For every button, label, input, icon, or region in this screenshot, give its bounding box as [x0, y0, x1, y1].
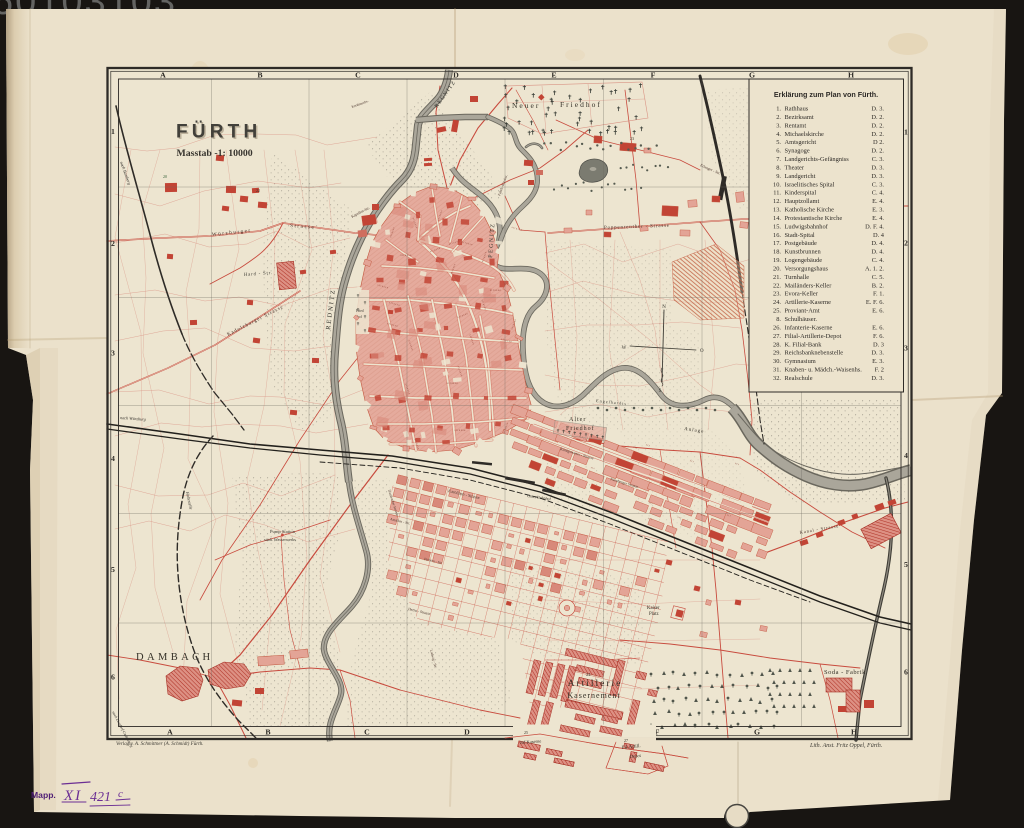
svg-text:D. F. 4.: D. F. 4.: [865, 223, 884, 230]
svg-text:22.: 22.: [773, 282, 781, 289]
svg-text:421: 421: [90, 790, 111, 805]
svg-text:27: 27: [624, 738, 628, 743]
svg-text:30.: 30.: [773, 358, 781, 365]
svg-text:A: A: [167, 727, 173, 736]
svg-text:C. 4.: C. 4.: [872, 190, 885, 197]
svg-text:Rentamt: Rentamt: [785, 122, 807, 129]
svg-text:2.: 2.: [776, 114, 781, 121]
svg-text:Realschule: Realschule: [785, 375, 813, 382]
svg-text:D. 3.: D. 3.: [871, 106, 884, 113]
svg-text:13.: 13.: [773, 207, 781, 214]
svg-text:25: 25: [524, 730, 528, 735]
svg-text:D. 4.: D. 4.: [871, 240, 884, 247]
svg-text:B: B: [257, 70, 262, 79]
svg-text:19.: 19.: [773, 257, 781, 264]
svg-text:32.: 32.: [773, 375, 781, 382]
svg-text:20.: 20.: [773, 266, 781, 273]
svg-text:D. 2.: D. 2.: [871, 131, 884, 138]
svg-text:s t r a s s e: s t r a s s e: [401, 254, 413, 257]
svg-text:Katholische Kirche: Katholische Kirche: [785, 207, 835, 214]
svg-text:Pump Station: Pump Station: [270, 529, 296, 534]
svg-text:C: C: [364, 727, 370, 736]
svg-text:Mailänders-Keller: Mailänders-Keller: [785, 282, 833, 289]
svg-text:A. 1. 2.: A. 1. 2.: [865, 266, 884, 273]
svg-text:6: 6: [904, 667, 908, 676]
svg-text:12.: 12.: [773, 198, 781, 205]
svg-text:C. 3.: C. 3.: [872, 181, 885, 188]
svg-text:Infanterie-Kaserne: Infanterie-Kaserne: [785, 324, 833, 331]
svg-text:D. 2.: D. 2.: [871, 114, 884, 121]
svg-text:18.: 18.: [773, 249, 781, 256]
svg-text:3: 3: [904, 343, 908, 352]
svg-text:Logengebäude: Logengebäude: [785, 257, 823, 264]
svg-text:Artillerie-Kaserne: Artillerie-Kaserne: [785, 299, 832, 306]
svg-text:Israelitisches Spital: Israelitisches Spital: [785, 181, 835, 188]
svg-text:F. 6.: F. 6.: [873, 333, 884, 340]
svg-text:Stadt-Spital: Stadt-Spital: [785, 232, 815, 239]
svg-text:Friedhof: Friedhof: [560, 100, 602, 109]
svg-text:D. 3: D. 3: [873, 341, 884, 348]
svg-text:Turnhalle: Turnhalle: [785, 274, 810, 281]
svg-text:s t r a s s e: s t r a s s e: [447, 382, 459, 385]
svg-text:s t r a s s e: s t r a s s e: [455, 429, 467, 432]
svg-text:Fried: Fried: [356, 309, 364, 313]
svg-text:FÜRTH: FÜRTH: [176, 121, 261, 142]
svg-text:7.: 7.: [776, 156, 781, 163]
svg-text:27.: 27.: [773, 333, 781, 340]
svg-text:8.: 8.: [776, 164, 781, 171]
svg-text:4.: 4.: [776, 131, 781, 138]
svg-text:1: 1: [111, 127, 115, 136]
svg-text:8.: 8.: [776, 316, 781, 323]
svg-text:Michaelskirche: Michaelskirche: [785, 131, 825, 138]
svg-text:Ludwigsbahnhof: Ludwigsbahnhof: [785, 223, 829, 230]
svg-text:Erklärung zum Plan von Fürth.: Erklärung zum Plan von Fürth.: [774, 90, 878, 99]
svg-text:C. 3.: C. 3.: [872, 156, 885, 163]
svg-text:F. 2: F. 2: [875, 367, 884, 374]
svg-text:städt. Wasserwerks: städt. Wasserwerks: [264, 537, 296, 542]
svg-text:Protestantische Kirche: Protestantische Kirche: [785, 215, 843, 222]
svg-text:5.: 5.: [776, 139, 781, 146]
svg-text:Kaiser: Kaiser: [647, 606, 660, 611]
svg-text:B: B: [265, 727, 270, 736]
svg-text:Neuer: Neuer: [512, 101, 540, 110]
svg-text:3: 3: [111, 348, 115, 357]
svg-text:21.: 21.: [773, 274, 781, 281]
svg-text:Postgebäude: Postgebäude: [785, 240, 817, 247]
svg-text:E. 6.: E. 6.: [872, 324, 884, 331]
svg-text:E: E: [551, 70, 556, 79]
svg-text:Theater: Theater: [785, 164, 805, 171]
svg-text:Alter: Alter: [569, 417, 586, 423]
svg-text:Knaben- u. Mädch.-Waisenhs.: Knaben- u. Mädch.-Waisenhs.: [785, 367, 863, 374]
svg-text:31.: 31.: [773, 367, 781, 374]
svg-text:E. 4.: E. 4.: [872, 215, 884, 222]
svg-text:Rathhaus: Rathhaus: [785, 106, 809, 113]
svg-text:Filial-Artillerie-Depot: Filial-Artillerie-Depot: [785, 333, 842, 340]
svg-text:F. 1.: F. 1.: [873, 291, 884, 298]
svg-text:4: 4: [111, 454, 115, 463]
svg-text:23: 23: [630, 136, 634, 141]
svg-text:Verlag v. A. Schmittner (A. Sc: Verlag v. A. Schmittner (A. Schmidt) Für…: [116, 740, 204, 747]
svg-text:3.: 3.: [776, 122, 781, 129]
svg-text:Hauptzollamt: Hauptzollamt: [785, 198, 820, 205]
svg-text:Kinderspital: Kinderspital: [785, 190, 817, 197]
svg-text:D. 3.: D. 3.: [871, 173, 884, 180]
svg-text:23.: 23.: [773, 291, 781, 298]
svg-text:29.: 29.: [773, 350, 781, 357]
svg-text:9.: 9.: [776, 173, 781, 180]
svg-text:Artillerie: Artillerie: [568, 679, 623, 689]
svg-text:c: c: [118, 788, 123, 800]
svg-text:D. 4.: D. 4.: [871, 249, 884, 256]
svg-text:D. 2.: D. 2.: [871, 122, 884, 129]
svg-text:24: 24: [586, 672, 591, 677]
svg-text:D. 3.: D. 3.: [871, 350, 884, 357]
svg-text:s t r a s s e: s t r a s s e: [490, 289, 502, 292]
svg-text:C. 5.: C. 5.: [872, 274, 885, 281]
svg-text:2: 2: [111, 239, 115, 248]
svg-text:G: G: [754, 727, 760, 736]
svg-text:Reichsbanknebenstelle: Reichsbanknebenstelle: [785, 350, 844, 357]
svg-text:Masstab -1: 10000: Masstab -1: 10000: [177, 148, 253, 159]
svg-text:Schulhäuser.: Schulhäuser.: [785, 316, 818, 323]
svg-text:N: N: [662, 305, 666, 310]
svg-text:K. Filial-Bank: K. Filial-Bank: [785, 341, 823, 348]
svg-text:Landgerichts-Gefängniss: Landgerichts-Gefängniss: [785, 156, 850, 163]
svg-text:W: W: [622, 346, 627, 351]
svg-text:Platz: Platz: [649, 612, 659, 617]
svg-text:D. 4: D. 4: [873, 232, 885, 239]
svg-text:C. 4.: C. 4.: [872, 257, 885, 264]
svg-text:1: 1: [904, 128, 908, 137]
svg-text:Kasernement: Kasernement: [567, 691, 620, 700]
svg-text:1.: 1.: [776, 106, 781, 113]
svg-text:Evora-Keller: Evora-Keller: [785, 291, 819, 298]
svg-text:D. 3.: D. 3.: [871, 164, 884, 171]
svg-text:H: H: [848, 70, 854, 79]
svg-text:28.: 28.: [773, 341, 781, 348]
svg-text:Synagoge: Synagoge: [785, 148, 810, 155]
svg-text:Gymnasium: Gymnasium: [785, 358, 816, 365]
svg-text:D. 2.: D. 2.: [871, 148, 884, 155]
svg-text:14.: 14.: [773, 215, 781, 222]
svg-text:D: D: [453, 70, 459, 79]
svg-text:17.: 17.: [773, 240, 781, 247]
svg-text:26.: 26.: [773, 324, 781, 331]
svg-text:E. 6.: E. 6.: [872, 308, 884, 315]
svg-text:A: A: [160, 70, 166, 79]
svg-text:10.: 10.: [773, 181, 781, 188]
svg-text:24.: 24.: [773, 299, 781, 306]
svg-text:2: 2: [904, 238, 908, 247]
svg-text:Mapp.: Mapp.: [31, 790, 56, 800]
svg-text:16.: 16.: [773, 232, 781, 239]
svg-text:D. 3.: D. 3.: [871, 375, 884, 382]
svg-text:Proviant-Amt: Proviant-Amt: [785, 308, 820, 315]
svg-text:4: 4: [904, 451, 908, 460]
svg-text:5: 5: [111, 565, 115, 574]
svg-text:Bezirksamt: Bezirksamt: [785, 114, 814, 121]
svg-text:H: H: [851, 727, 857, 736]
svg-text:20: 20: [163, 174, 167, 179]
svg-text:Landgericht: Landgericht: [785, 173, 816, 180]
svg-text:5: 5: [904, 560, 908, 569]
svg-text:Amtsgericht: Amtsgericht: [785, 139, 817, 146]
svg-text:25.: 25.: [773, 308, 781, 315]
svg-text:G: G: [749, 70, 755, 79]
svg-text:B. 2.: B. 2.: [872, 282, 885, 289]
svg-text:Soda - Fabrik: Soda - Fabrik: [824, 669, 866, 676]
svg-text:22: 22: [256, 188, 260, 193]
svg-text:6.: 6.: [776, 148, 781, 155]
svg-text:E. 3.: E. 3.: [872, 207, 884, 214]
svg-text:15.: 15.: [773, 223, 781, 230]
svg-text:11.: 11.: [773, 190, 781, 197]
svg-text:Friedhof: Friedhof: [566, 425, 595, 432]
svg-text:E. 4.: E. 4.: [872, 198, 884, 205]
svg-text:E. 3.: E. 3.: [872, 358, 884, 365]
svg-text:DAMBACH: DAMBACH: [136, 652, 213, 663]
svg-text:D: D: [464, 727, 470, 736]
svg-text:D 2.: D 2.: [873, 139, 884, 146]
svg-text:Lith. Anst. Fritz Oppel, Fürth: Lith. Anst. Fritz Oppel, Fürth.: [809, 743, 882, 749]
svg-text:S: S: [659, 389, 662, 394]
svg-text:E. F. 6.: E. F. 6.: [866, 299, 885, 306]
svg-text:C: C: [355, 70, 361, 79]
svg-text:F: F: [651, 70, 656, 79]
svg-text:6: 6: [111, 672, 115, 681]
svg-text:Versorgungshaus: Versorgungshaus: [785, 266, 829, 273]
svg-text:Kunstbrunnen: Kunstbrunnen: [785, 249, 822, 256]
